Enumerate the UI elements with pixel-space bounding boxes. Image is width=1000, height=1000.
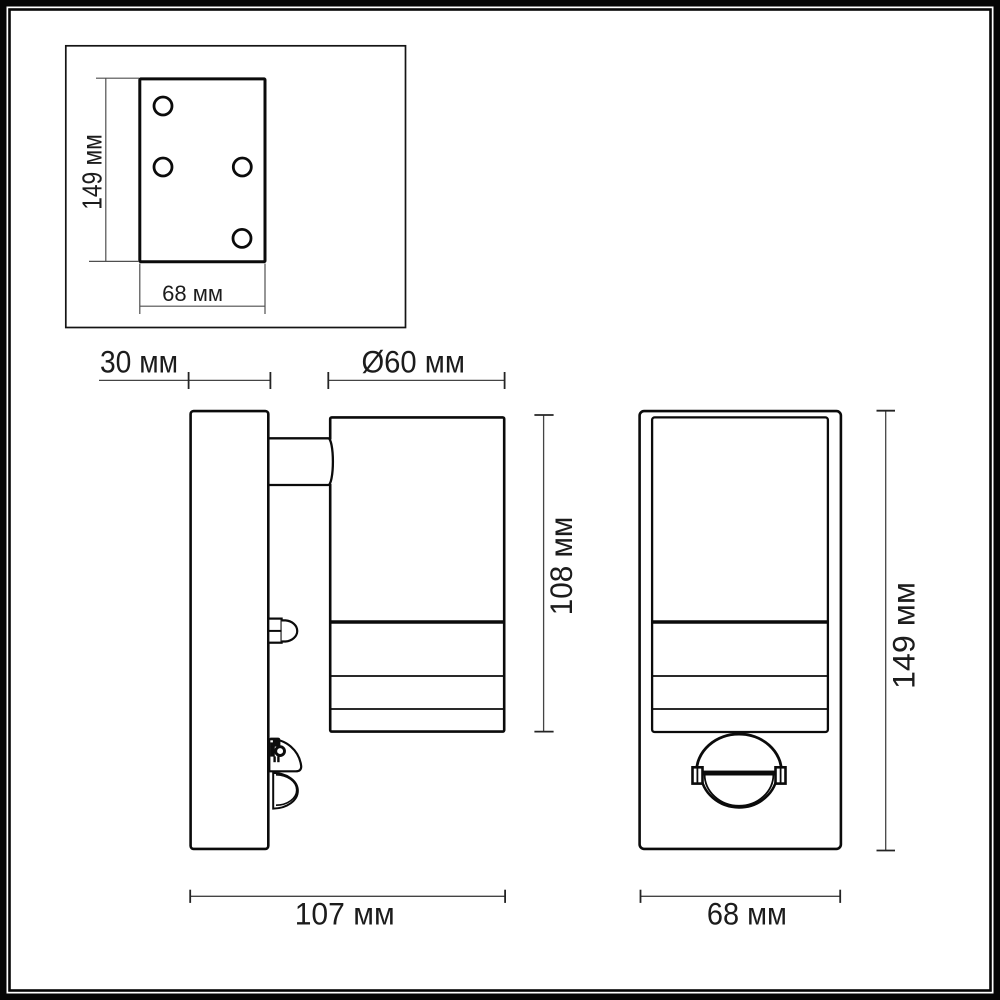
svg-text:149 мм: 149 мм [76, 134, 107, 210]
svg-text:68 мм: 68 мм [707, 896, 787, 932]
svg-text:30 мм: 30 мм [100, 343, 178, 379]
svg-text:108 мм: 108 мм [543, 517, 579, 616]
svg-text:Ø60 мм: Ø60 мм [361, 344, 465, 380]
svg-text:68 мм: 68 мм [162, 281, 223, 306]
svg-text:107 мм: 107 мм [295, 896, 395, 932]
svg-text:149 мм: 149 мм [885, 582, 921, 689]
